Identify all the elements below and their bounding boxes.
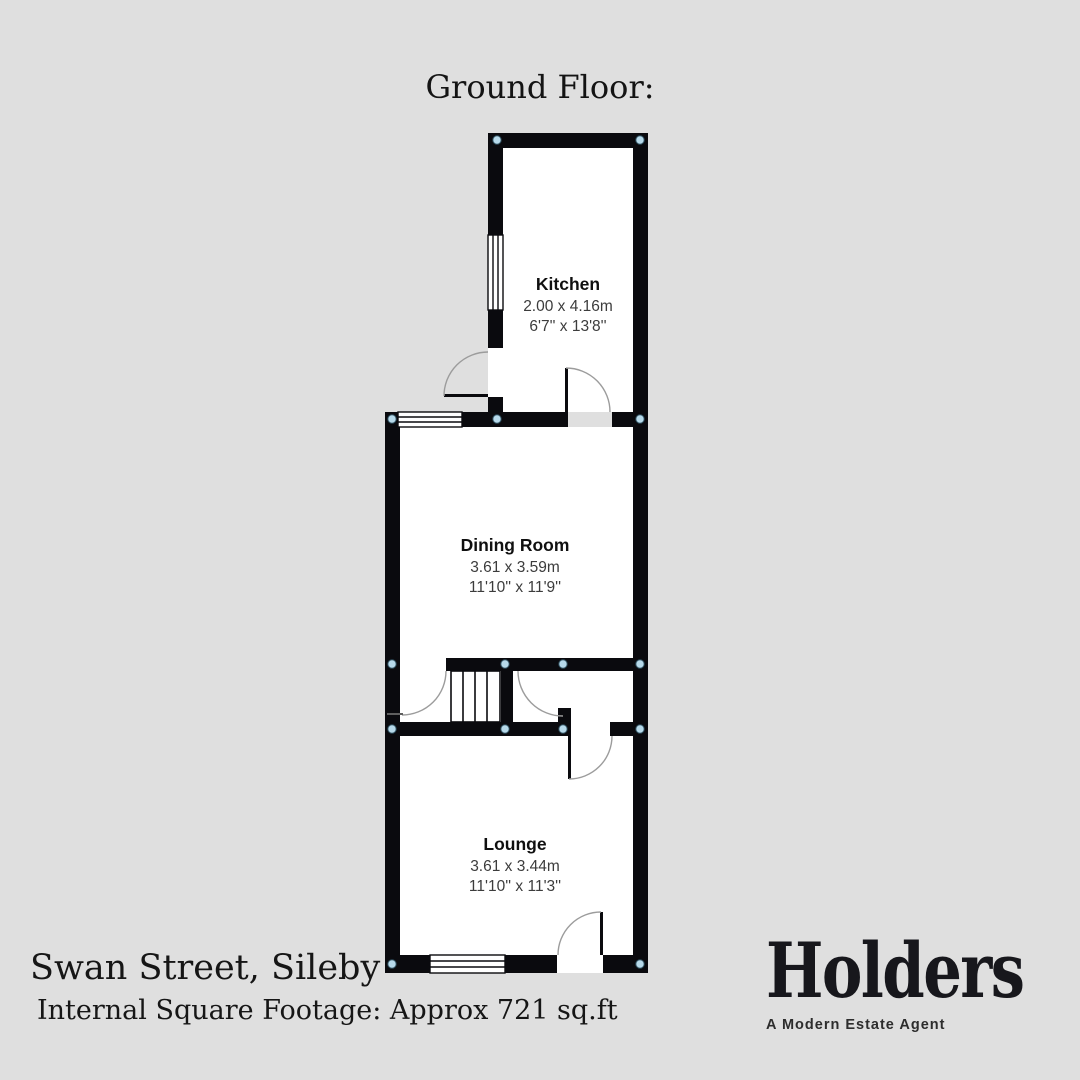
marker-dot [636,725,644,733]
wall-lounge-top-left [385,722,571,736]
marker-dot [493,415,501,423]
kitchen-metric: 2.00 x 4.16m [523,298,613,315]
dining-window [398,412,462,427]
wall-dining-top-mid [462,412,568,427]
floorplan-drawing: Kitchen 2.00 x 4.16m 6'7'' x 13'8'' Dini… [0,0,1080,1080]
kitchen-back-door-opening [488,348,503,397]
marker-dot [636,960,644,968]
marker-dot [559,660,567,668]
kitchen-window [488,235,503,310]
floorplan-page: Ground Floor: [0,0,1080,1080]
lounge-label: Lounge [483,834,546,854]
wall-main-right [633,427,648,973]
front-door-opening [557,955,603,973]
wall-dining-bottom [446,658,648,671]
wall-main-left [385,427,400,973]
wall-kitchen-left-upper [488,148,503,235]
agency-name: Holders [766,932,1014,1010]
wall-kitchen-top [488,133,648,148]
dining-label: Dining Room [461,535,570,555]
marker-dot [388,960,396,968]
lounge-imperial: 11'10'' x 11'3'' [469,878,561,895]
marker-dot [559,725,567,733]
lounge-metric: 3.61 x 3.44m [470,858,560,875]
wall-lounge-bottom-mid [505,955,557,973]
agency-tagline: A Modern Estate Agent [766,1017,1076,1033]
kitchen-label: Kitchen [536,274,600,294]
marker-dot [388,660,396,668]
kitchen-imperial: 6'7'' x 13'8'' [529,318,606,335]
staircase [451,671,500,722]
kitchen-back-door-arc [444,352,488,396]
marker-dot [636,415,644,423]
wall-kitchen-left-mid [488,310,503,348]
wall-stair-right [501,671,513,722]
agency-logo: Holders A Modern Estate Agent [766,932,1076,1033]
marker-dot [388,725,396,733]
wall-kitchen-left-stub [488,397,503,412]
marker-dot [501,660,509,668]
marker-dot [636,136,644,144]
dining-metric: 3.61 x 3.59m [470,559,560,576]
property-address: Swan Street, Sileby [30,948,380,988]
square-footage: Internal Square Footage: Approx 721 sq.f… [37,995,618,1026]
marker-dot [388,415,396,423]
marker-dot [501,725,509,733]
marker-dot [493,136,501,144]
marker-dot [636,660,644,668]
wall-lobby-stub [558,708,571,722]
lounge-window [430,955,505,973]
wall-kitchen-right [633,148,648,427]
dining-imperial: 11'10'' x 11'9'' [469,579,561,596]
